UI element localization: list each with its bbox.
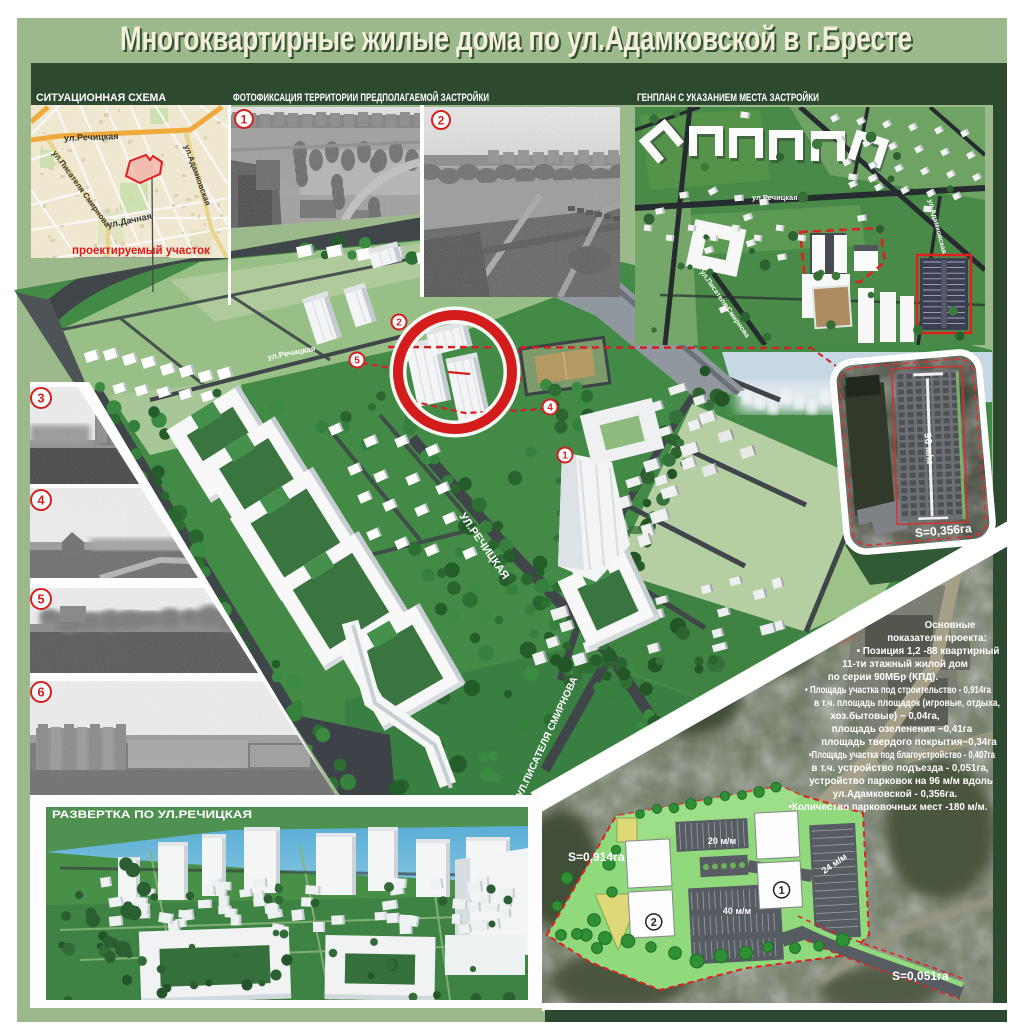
svg-text:ГЕНПЛАН С УКАЗАНИЕМ МЕСТА ЗАСТ: ГЕНПЛАН С УКАЗАНИЕМ МЕСТА ЗАСТРОЙКИ xyxy=(637,91,819,104)
svg-text:1: 1 xyxy=(562,451,568,462)
svg-text:в т.ч. устройство подъезда - 0: в т.ч. устройство подъезда - 0,051га, xyxy=(811,763,989,774)
svg-text:устройство парковок на 96 м/м: устройство парковок на 96 м/м вдоль xyxy=(809,776,993,787)
svg-text:11-ти этажный жилой дом: 11-ти этажный жилой дом xyxy=(842,659,968,670)
svg-text:Многоквартирные жилые дома по: Многоквартирные жилые дома по ул.Адамков… xyxy=(120,20,912,58)
svg-text:4: 4 xyxy=(37,493,45,508)
svg-text:• Площадь участка под строител: • Площадь участка под строительство - 0,… xyxy=(805,685,991,696)
svg-text:S=0,051га: S=0,051га xyxy=(892,969,949,983)
svg-text:хоз.бытовые) ~ 0,04га,: хоз.бытовые) ~ 0,04га, xyxy=(830,711,940,722)
svg-text:1: 1 xyxy=(241,112,248,126)
svg-text:ул.Адамковской - 0,356га.: ул.Адамковской - 0,356га. xyxy=(833,789,958,800)
svg-text:4: 4 xyxy=(547,403,553,414)
svg-text:S=0,914га: S=0,914га xyxy=(568,850,625,864)
svg-text:20 м/м: 20 м/м xyxy=(708,836,737,846)
svg-text:показатели проекта:: показатели проекта: xyxy=(887,633,987,644)
svg-text:5: 5 xyxy=(354,356,360,367)
svg-text:ФОТОФИКСАЦИЯ ТЕРРИТОРИИ ПРЕДПО: ФОТОФИКСАЦИЯ ТЕРРИТОРИИ ПРЕДПОЛАГАЕМОЙ З… xyxy=(233,91,489,104)
svg-text:•Количество парковочных мест -: •Количество парковочных мест -180 м/м. xyxy=(789,802,988,813)
svg-text:ул.Речицкая: ул.Речицкая xyxy=(64,131,119,143)
svg-text:6: 6 xyxy=(37,685,44,700)
svg-text:площадь озеленения ~0,41га: площадь озеленения ~0,41га xyxy=(832,724,973,735)
svg-text:1: 1 xyxy=(778,885,785,897)
svg-text:5: 5 xyxy=(37,592,44,607)
svg-text:СИТУАЦИОННАЯ СХЕМА: СИТУАЦИОННАЯ СХЕМА xyxy=(36,92,166,104)
svg-text:• Позиция 1,2 -88 квартирный: • Позиция 1,2 -88 квартирный xyxy=(857,646,1000,657)
svg-text:проектируемый участок: проектируемый участок xyxy=(72,245,210,257)
svg-text:2: 2 xyxy=(650,917,657,929)
svg-text:РАЗВЕРТКА ПО УЛ.РЕЧИЦКАЯ: РАЗВЕРТКА ПО УЛ.РЕЧИЦКАЯ xyxy=(52,809,252,821)
svg-text:40 м/м: 40 м/м xyxy=(723,906,752,916)
svg-text:ул.Речицкая: ул.Речицкая xyxy=(752,193,798,202)
svg-text:Основные: Основные xyxy=(925,620,976,631)
svg-text:2: 2 xyxy=(438,113,445,127)
svg-text:3: 3 xyxy=(37,391,44,406)
svg-text:в т.ч. площадь площадок (игров: в т.ч. площадь площадок (игровые, отдыха… xyxy=(814,698,1000,709)
svg-text:по серии 90МБр (КПД).: по серии 90МБр (КПД). xyxy=(828,672,939,683)
svg-text:2: 2 xyxy=(396,318,402,329)
svg-text:•Площадь участка под благоустр: •Площадь участка под благоустройство - 0… xyxy=(809,750,995,761)
svg-text:площадь твердого покрытия~0,34: площадь твердого покрытия~0,34га xyxy=(821,737,997,748)
